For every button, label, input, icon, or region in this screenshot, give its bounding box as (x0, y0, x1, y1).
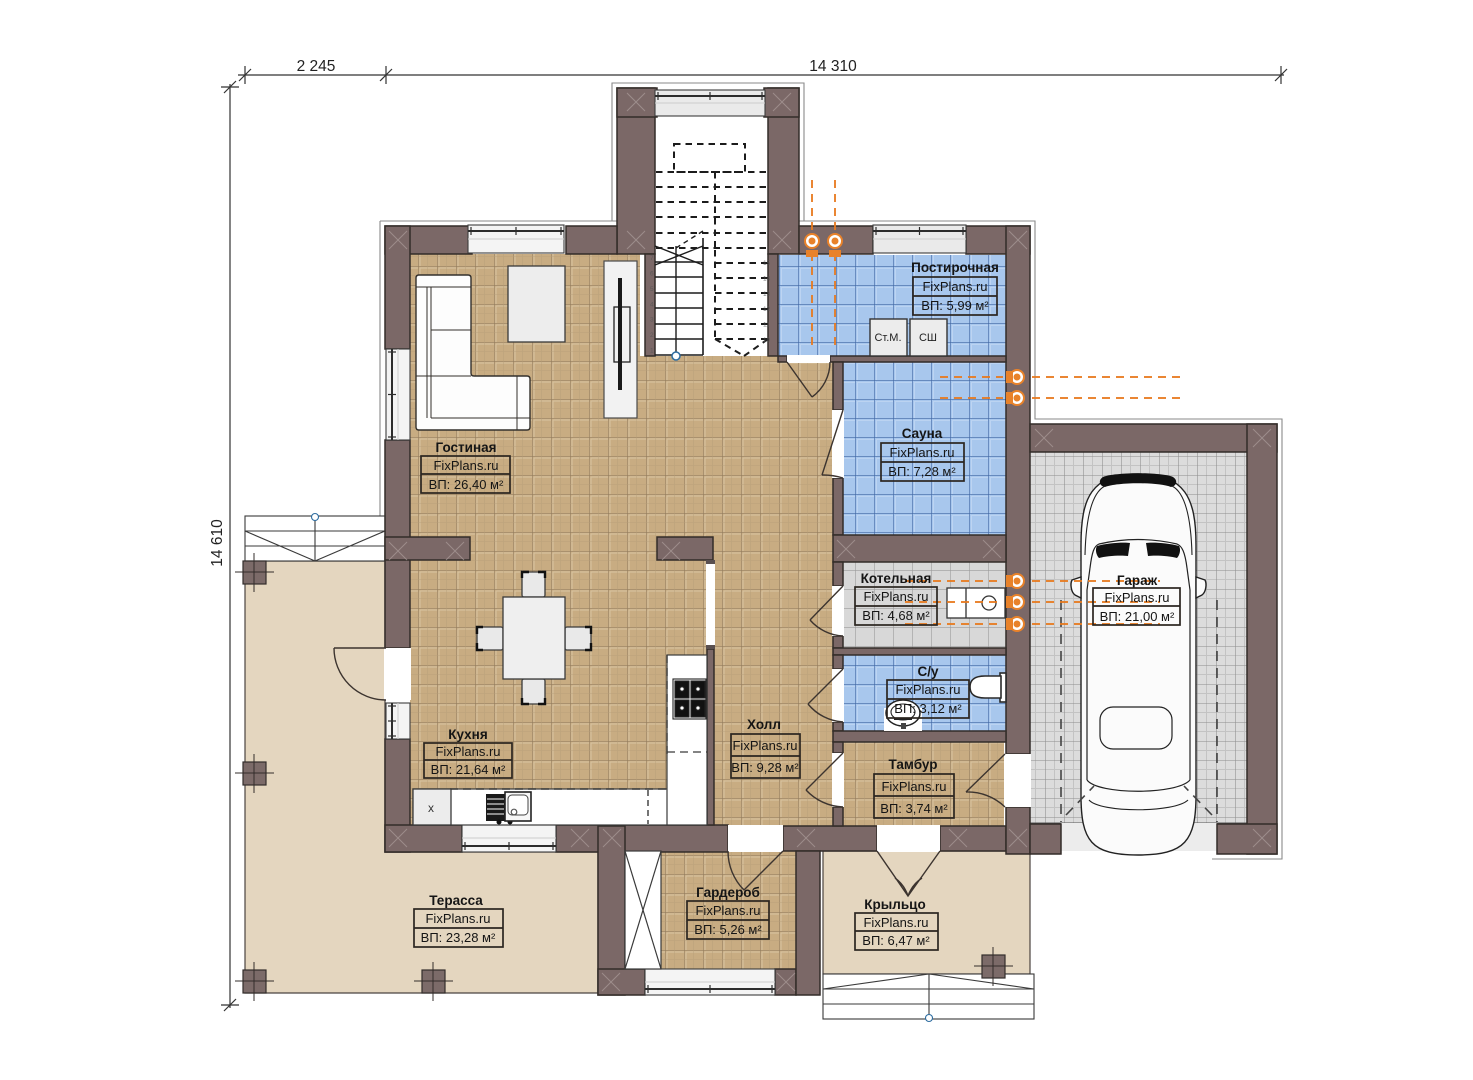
svg-text:FixPlans.ru: FixPlans.ru (863, 915, 928, 930)
svg-text:Тамбур: Тамбур (889, 757, 938, 772)
svg-text:СШ: СШ (919, 332, 937, 344)
svg-text:ВП: 26,40 м²: ВП: 26,40 м² (429, 477, 504, 492)
svg-text:FixPlans.ru: FixPlans.ru (889, 445, 954, 460)
svg-text:ВП: 5,26 м²: ВП: 5,26 м² (694, 922, 762, 937)
svg-text:FixPlans.ru: FixPlans.ru (895, 682, 960, 697)
svg-text:FixPlans.ru: FixPlans.ru (732, 738, 797, 753)
svg-text:15: 15 (763, 260, 771, 267)
svg-text:Терасса: Терасса (429, 893, 483, 908)
svg-text:Гардероб: Гардероб (696, 885, 760, 900)
svg-text:FixPlans.ru: FixPlans.ru (922, 279, 987, 294)
svg-text:12: 12 (763, 306, 771, 313)
svg-text:С/у: С/у (917, 664, 939, 679)
svg-text:ВП: 23,28 м²: ВП: 23,28 м² (421, 930, 496, 945)
svg-text:ВП: 6,47 м²: ВП: 6,47 м² (862, 933, 930, 948)
svg-text:14 310: 14 310 (809, 58, 857, 75)
svg-text:ВП: 4,68 м²: ВП: 4,68 м² (862, 608, 930, 623)
svg-text:FixPlans.ru: FixPlans.ru (435, 744, 500, 759)
svg-text:ВП: 7,28 м²: ВП: 7,28 м² (888, 464, 956, 479)
svg-text:13: 13 (763, 291, 771, 298)
svg-text:Гараж: Гараж (1117, 573, 1158, 588)
svg-text:FixPlans.ru: FixPlans.ru (695, 903, 760, 918)
svg-text:x: x (428, 801, 434, 815)
svg-text:ВП: 21,00 м²: ВП: 21,00 м² (1100, 609, 1175, 624)
svg-text:FixPlans.ru: FixPlans.ru (863, 589, 928, 604)
svg-text:2: 2 (650, 332, 654, 339)
svg-text:4: 4 (650, 301, 654, 308)
svg-text:ВП: 3,12 м²: ВП: 3,12 м² (894, 701, 962, 716)
svg-text:3: 3 (650, 317, 654, 324)
svg-text:ВП: 21,64 м²: ВП: 21,64 м² (431, 762, 506, 777)
svg-text:Котельная: Котельная (861, 571, 932, 586)
svg-text:7: 7 (650, 255, 654, 262)
svg-text:Крыльцо: Крыльцо (864, 897, 925, 912)
svg-text:Кухня: Кухня (448, 727, 487, 742)
svg-text:Ст.М.: Ст.М. (874, 332, 901, 344)
svg-text:ВП: 9,28 м²: ВП: 9,28 м² (731, 760, 799, 775)
svg-text:ВП: 5,99 м²: ВП: 5,99 м² (921, 298, 989, 313)
svg-text:14 610: 14 610 (209, 519, 226, 567)
svg-text:Холл: Холл (747, 717, 781, 732)
svg-text:10: 10 (763, 337, 771, 344)
svg-text:2 245: 2 245 (297, 58, 336, 75)
svg-text:Постирочная: Постирочная (911, 260, 999, 275)
svg-text:Сауна: Сауна (902, 426, 943, 441)
svg-text:FixPlans.ru: FixPlans.ru (1104, 590, 1169, 605)
svg-text:ВП: 3,74 м²: ВП: 3,74 м² (880, 801, 948, 816)
svg-text:14: 14 (763, 275, 771, 282)
svg-text:11: 11 (763, 322, 770, 329)
svg-text:FixPlans.ru: FixPlans.ru (881, 779, 946, 794)
svg-text:1: 1 (650, 348, 654, 355)
svg-text:FixPlans.ru: FixPlans.ru (433, 458, 498, 473)
svg-text:Гостиная: Гостиная (435, 440, 496, 455)
svg-text:FixPlans.ru: FixPlans.ru (425, 911, 490, 926)
svg-text:5: 5 (650, 286, 654, 293)
svg-text:6: 6 (650, 271, 654, 278)
